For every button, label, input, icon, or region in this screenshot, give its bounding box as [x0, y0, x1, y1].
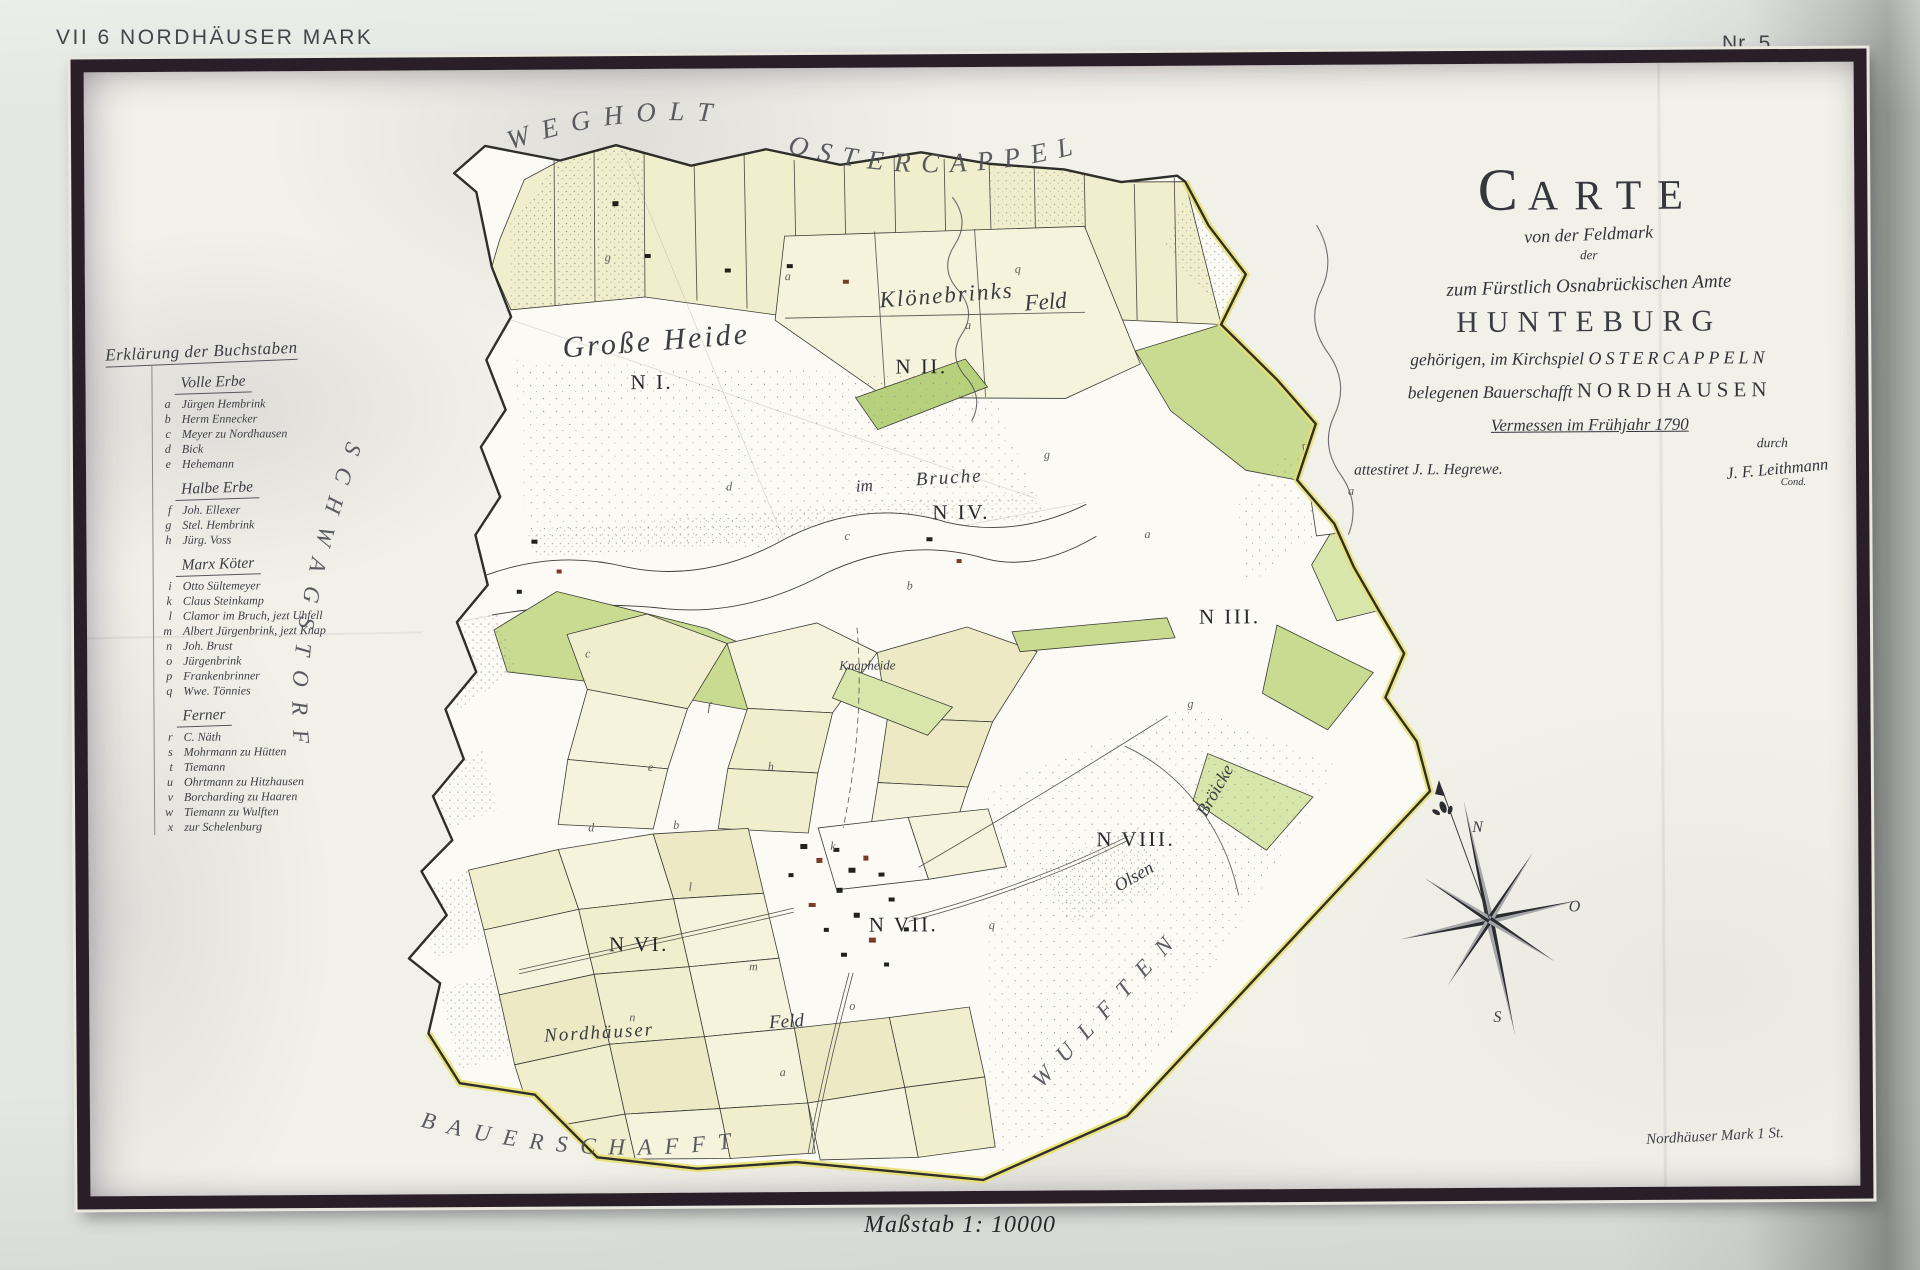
map-label: e: [648, 760, 654, 774]
legend-entry-name: Wwe. Tönnies: [183, 683, 250, 698]
legend-entry-name: C. Näth: [184, 730, 221, 745]
attestation: attestiret J. L. Hegrewe.: [1354, 461, 1503, 480]
legend-entry: qWwe. Tönnies: [158, 683, 365, 699]
map-label: q: [989, 918, 995, 932]
legend-entry: aJürgen Hembrink: [157, 396, 364, 412]
legend-entry: vBorcharding zu Haaren: [159, 789, 366, 805]
book-page: VII 6 NORDHÄUSER MARK Nr. 5: [0, 0, 1920, 1270]
legend-entry-letter: l: [158, 609, 172, 624]
map-label: q: [1015, 262, 1021, 276]
map-label: d: [588, 820, 595, 834]
legend-entry: fJoh. Ellexer: [157, 502, 364, 518]
map-label: k: [830, 839, 836, 853]
legend-entry-letter: o: [158, 654, 172, 669]
legend-entry: oJürgenbrink: [158, 653, 365, 669]
map-label: N VI.: [609, 932, 669, 956]
legend-entry: bHerm Ennecker: [157, 411, 364, 427]
map-label: a: [1144, 527, 1150, 541]
legend-entry: mAlbert Jürgenbrink, jezt Knap: [158, 623, 365, 639]
legend-entry-name: Tiemann zu Wulften: [184, 804, 279, 820]
map-title: Carte: [1346, 154, 1830, 226]
legend-block: Erklärung der Buchstaben Volle ErbeaJürg…: [105, 341, 366, 836]
map-sheet: WEGHOLTOSTERCAPPELNSCHWAGSTORFBAUERSCHAF…: [71, 49, 1874, 1210]
legend-entry: uOhrtmann zu Hitzhausen: [159, 774, 366, 790]
legend-entry-letter: g: [157, 518, 171, 533]
legend-group-heading: Halbe Erbe: [175, 478, 259, 501]
map-label: d: [726, 479, 733, 493]
map-label: Knapheide: [838, 657, 896, 672]
legend-entry-name: Jürgen Hembrink: [182, 396, 266, 412]
legend-group-heading: Ferner: [176, 706, 232, 728]
legend-entry-letter: k: [158, 594, 172, 609]
legend-entry-name: Stel. Hembrink: [182, 517, 254, 532]
scale-caption: Maßstab 1: 10000: [864, 1212, 1056, 1239]
map-label: N II.: [895, 354, 947, 378]
map-label: O: [1569, 898, 1581, 915]
legend-group-heading: Volle Erbe: [174, 372, 252, 394]
legend-entry-letter: v: [159, 790, 173, 805]
legend-group-heading: Marx Köter: [175, 554, 260, 577]
map-label: m: [749, 959, 758, 973]
map-label: Feld: [768, 1010, 805, 1033]
legend-entry: gStel. Hembrink: [157, 517, 364, 533]
amt-line: zum Fürstlich Osnabrückischen Amte: [1347, 267, 1831, 305]
legend-entry-name: Borcharding zu Haaren: [184, 789, 297, 805]
legend-entry-name: Joh. Ellexer: [182, 502, 240, 517]
map-label: N III.: [1199, 604, 1261, 628]
map-label: b: [907, 578, 913, 592]
legend-entry-letter: i: [158, 579, 172, 594]
map-label: S: [1493, 1009, 1501, 1026]
legend-entries: Volle ErbeaJürgen HembrinkbHerm Ennecker…: [151, 365, 366, 835]
legend-entry-letter: m: [158, 624, 172, 639]
legend-entry-name: Otto Sültemeyer: [183, 578, 261, 593]
legend-entry-name: Bick: [182, 442, 203, 457]
legend-entry: rC. Näth: [159, 729, 366, 745]
map-paper: WEGHOLTOSTERCAPPELNSCHWAGSTORFBAUERSCHAF…: [84, 62, 1861, 1197]
legend-entry-letter: d: [157, 442, 171, 457]
legend-entry-name: Jürg. Voss: [182, 533, 231, 548]
map-label: g: [1187, 697, 1193, 711]
map-label: c: [585, 646, 591, 660]
legend-entry-name: Tiemann: [184, 760, 225, 775]
legend-entry-letter: x: [159, 820, 173, 835]
legend-entry-letter: h: [157, 533, 171, 548]
legend-entry-name: Hehemann: [182, 457, 234, 472]
legend-entry-letter: r: [159, 730, 173, 745]
amt-name: HUNTEBURG: [1347, 304, 1831, 341]
bauerschaft-name: NORDHAUSEN: [1577, 377, 1772, 402]
legend-entry-name: Albert Jürgenbrink, jezt Knap: [183, 623, 326, 639]
legend-entry-name: Claus Steinkamp: [183, 593, 264, 608]
legend-entry-name: Frankenbrinner: [183, 668, 260, 683]
legend-title: Erklärung der Buchstaben: [105, 338, 298, 368]
legend-entry: xzur Schelenburg: [159, 819, 366, 835]
legend-entry: nJoh. Brust: [158, 638, 365, 654]
map-label: Bruche: [915, 465, 983, 490]
legend-entry: lClamor im Bruch, jezt Uhfell: [158, 608, 365, 624]
legend-entry: iOtto Sültemeyer: [158, 578, 365, 594]
map-label: b: [673, 818, 679, 832]
legend-entry: cMeyer zu Nordhausen: [157, 426, 364, 442]
bauerschaft-pre: belegenen Bauerschafft: [1408, 381, 1573, 402]
map-label: N: [1471, 819, 1484, 836]
legend-entry: sMohrmann zu Hütten: [159, 744, 366, 760]
legend-entry-letter: b: [157, 412, 171, 427]
legend-entry-name: Joh. Brust: [183, 639, 232, 654]
legend-entry: dBick: [157, 441, 364, 457]
legend-entry-letter: q: [158, 684, 172, 699]
map-label: N I.: [630, 370, 673, 394]
legend-entry-name: Herm Ennecker: [182, 411, 258, 426]
map-label: n: [629, 1010, 635, 1024]
bauerschaft-line: belegenen Bauerschafft NORDHAUSEN: [1347, 377, 1831, 405]
parish-name: OSTERCAPPELN: [1588, 347, 1768, 368]
parish-line: gehörigen, im Kirchspiel OSTERCAPPELN: [1347, 347, 1831, 371]
legend-entry-letter: w: [159, 805, 173, 820]
legend-entry-letter: s: [159, 745, 173, 760]
title-block: Carte von der Feldmark der zum Fürstlich…: [1346, 154, 1832, 491]
map-label: N VII.: [869, 912, 939, 936]
legend-entry-letter: a: [157, 397, 171, 412]
legend-entry-name: Mohrmann zu Hütten: [184, 744, 287, 760]
map-label: a: [780, 1065, 786, 1079]
legend-entry: eHehemann: [157, 456, 364, 472]
map-label: a: [785, 269, 791, 283]
parish-pre: gehörigen, im Kirchspiel: [1410, 348, 1584, 369]
legend-entry-letter: t: [159, 760, 173, 775]
legend-entry-name: Ohrtmann zu Hitzhausen: [184, 774, 304, 790]
legend-entry-letter: n: [158, 639, 172, 654]
legend-entry-name: Meyer zu Nordhausen: [182, 426, 288, 442]
legend-entry-letter: u: [159, 775, 173, 790]
legend-entry: hJürg. Voss: [157, 532, 364, 548]
legend-entry: kClaus Steinkamp: [158, 593, 365, 609]
legend-entry: pFrankenbrinner: [158, 668, 365, 684]
map-label: c: [844, 529, 850, 543]
legend-entry: wTiemann zu Wulften: [159, 804, 366, 820]
durch-word: durch: [1348, 435, 1832, 454]
legend-entry-letter: p: [158, 669, 172, 684]
map-label: o: [849, 999, 855, 1013]
legend-entry-name: zur Schelenburg: [184, 819, 262, 834]
legend-entry-letter: e: [157, 457, 171, 472]
map-label: g: [605, 250, 611, 264]
map-label: N IV.: [932, 500, 990, 524]
legend-entry-name: Clamor im Bruch, jezt Uhfell: [183, 608, 323, 624]
legend-entry-name: Jürgenbrink: [183, 653, 241, 668]
map-label: h: [768, 759, 774, 773]
legend-entry-letter: f: [157, 503, 171, 518]
survey-line: Vermessen im Frühjahr 1790: [1348, 414, 1832, 437]
map-label: N VIII.: [1096, 827, 1175, 851]
legend-entry-letter: c: [157, 427, 171, 442]
map-label: g: [1044, 448, 1050, 462]
map-label: a: [965, 318, 971, 332]
map-label: Feld: [1023, 287, 1068, 315]
legend-entry: tTiemann: [159, 759, 366, 775]
page-header: VII 6 NORDHÄUSER MARK: [56, 26, 373, 50]
map-label: im: [855, 476, 873, 496]
